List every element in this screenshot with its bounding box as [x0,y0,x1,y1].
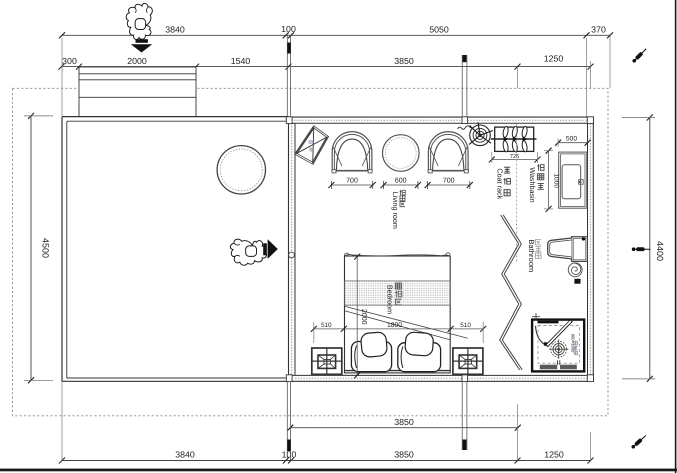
svg-text:300: 300 [62,56,77,66]
svg-text:510: 510 [321,322,332,329]
svg-text:Bathroom: Bathroom [527,239,536,272]
svg-text:1250: 1250 [544,449,564,459]
svg-text:Washbasin: Washbasin [528,167,537,202]
svg-text:500: 500 [566,135,577,142]
svg-text:3840: 3840 [175,449,195,459]
svg-text:370: 370 [591,25,606,35]
svg-text:2000: 2000 [127,56,147,66]
svg-text:1000: 1000 [553,173,560,188]
svg-text:3840: 3840 [165,25,185,35]
svg-text:4500: 4500 [41,238,51,258]
svg-text:3850: 3850 [394,56,414,66]
svg-text:700: 700 [346,178,358,185]
svg-text:725: 725 [510,154,519,160]
svg-text:Living room: Living room [391,192,400,229]
svg-text:1800: 1800 [387,322,402,329]
svg-text:3850: 3850 [394,449,414,459]
svg-text:3850: 3850 [394,417,414,427]
svg-text:Bedroom: Bedroom [385,285,394,314]
svg-text:1540: 1540 [231,56,251,66]
svg-text:Coat rack: Coat rack [496,168,505,199]
svg-text:1250: 1250 [544,54,564,64]
svg-text:700: 700 [443,178,455,185]
svg-text:2000: 2000 [360,309,367,325]
svg-text:510: 510 [460,322,471,329]
svg-text:4400: 4400 [655,241,665,261]
svg-text:600: 600 [395,178,407,185]
svg-text:100: 100 [281,24,296,34]
svg-text:5050: 5050 [429,25,449,35]
